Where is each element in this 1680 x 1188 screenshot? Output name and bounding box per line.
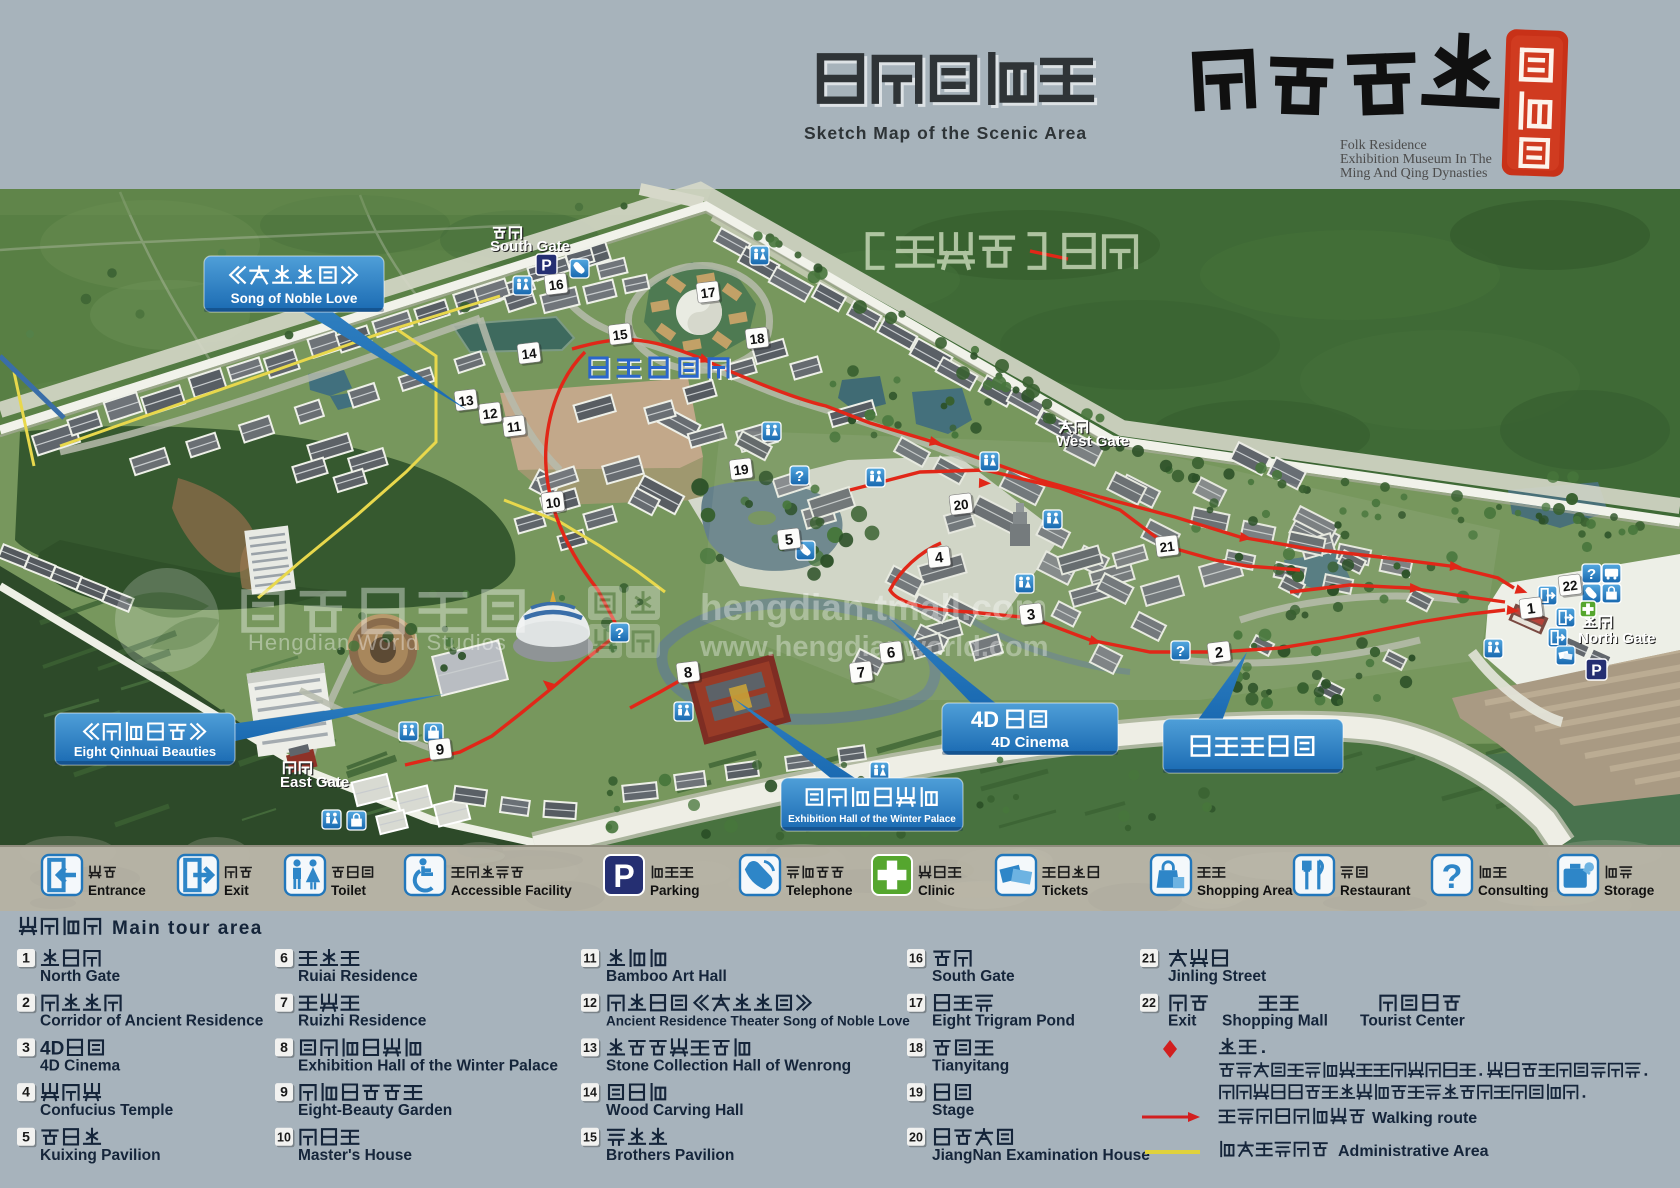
- svg-text:4D: 4D: [40, 1038, 64, 1059]
- svg-text:Eight Trigram Pond: Eight Trigram Pond: [932, 1013, 1075, 1030]
- svg-text:16: 16: [548, 277, 565, 294]
- svg-text:JiangNan Examination House: JiangNan Examination House: [932, 1147, 1150, 1164]
- svg-text:Accessible Facility: Accessible Facility: [451, 883, 572, 898]
- svg-text:13: 13: [583, 1041, 597, 1055]
- svg-text:Restaurant: Restaurant: [1340, 883, 1411, 898]
- svg-text:14: 14: [521, 346, 538, 363]
- svg-text:19: 19: [909, 1086, 923, 1100]
- svg-text:East Gate: East Gate: [280, 774, 349, 791]
- svg-text:Corridor of Ancient Residence: Corridor of Ancient Residence: [40, 1013, 264, 1030]
- svg-text:P: P: [1591, 662, 1602, 679]
- svg-text:Confucius Temple: Confucius Temple: [40, 1102, 174, 1119]
- svg-text:Parking: Parking: [650, 883, 700, 898]
- svg-text:Consulting: Consulting: [1478, 883, 1549, 898]
- svg-text:P: P: [541, 257, 552, 274]
- svg-text:Walking route: Walking route: [1372, 1110, 1477, 1127]
- svg-text:?: ?: [795, 468, 804, 485]
- svg-text:Stone Collection Hall of Wenro: Stone Collection Hall of Wenrong: [606, 1057, 851, 1074]
- svg-text:11: 11: [506, 419, 522, 436]
- svg-text:4D Cinema: 4D Cinema: [40, 1057, 120, 1074]
- svg-text:4D: 4D: [971, 707, 999, 732]
- svg-text:5: 5: [22, 1128, 30, 1144]
- svg-text:20: 20: [909, 1130, 923, 1144]
- svg-text:Toilet: Toilet: [331, 883, 367, 898]
- svg-text:2: 2: [22, 994, 30, 1010]
- svg-text:19: 19: [733, 462, 750, 479]
- svg-text:Exit: Exit: [1168, 1013, 1196, 1030]
- svg-text:1: 1: [22, 950, 30, 966]
- svg-text:Song of Noble Love: Song of Noble Love: [231, 291, 358, 306]
- svg-text:Ruiai Residence: Ruiai Residence: [298, 968, 418, 985]
- svg-text:Exhibition Hall of the Winter: Exhibition Hall of the Winter Palace: [788, 814, 956, 825]
- svg-text:9: 9: [280, 1084, 288, 1100]
- svg-text:South Gate: South Gate: [490, 238, 570, 255]
- svg-text:22: 22: [1562, 578, 1579, 595]
- svg-text:4D Cinema: 4D Cinema: [991, 734, 1069, 751]
- svg-text:22: 22: [1142, 996, 1156, 1010]
- svg-text:20: 20: [953, 497, 970, 514]
- svg-text:Ruizhi Residence: Ruizhi Residence: [298, 1013, 427, 1030]
- svg-text:Administrative Area: Administrative Area: [1338, 1143, 1489, 1160]
- svg-text:Bamboo Art Hall: Bamboo Art Hall: [606, 968, 727, 985]
- svg-text:13: 13: [458, 393, 475, 410]
- svg-text:12: 12: [583, 996, 597, 1010]
- svg-text:21: 21: [1159, 539, 1176, 556]
- svg-text:Main tour area: Main tour area: [112, 918, 263, 939]
- svg-text:16: 16: [909, 952, 923, 966]
- svg-text:?: ?: [1176, 643, 1185, 660]
- svg-text:Wood Carving Hall: Wood Carving Hall: [606, 1102, 744, 1119]
- svg-text:21: 21: [1142, 952, 1156, 966]
- svg-text:hengdian.tmall.com: hengdian.tmall.com: [700, 587, 1047, 628]
- svg-text:Sketch Map of the Scenic Area: Sketch Map of the Scenic Area: [804, 123, 1087, 143]
- svg-text:Shopping Area: Shopping Area: [1197, 883, 1293, 898]
- svg-text:Entrance: Entrance: [88, 883, 146, 898]
- svg-text:P: P: [613, 858, 634, 894]
- svg-text:Telephone: Telephone: [786, 883, 853, 898]
- svg-text:Exhibition Museum In The: Exhibition Museum In The: [1340, 152, 1492, 167]
- svg-text:Jinling Street: Jinling Street: [1168, 968, 1266, 985]
- svg-text:?: ?: [1442, 858, 1463, 896]
- svg-text:www.hengdianworld.com: www.hengdianworld.com: [699, 631, 1049, 663]
- svg-text:15: 15: [583, 1130, 597, 1144]
- svg-text:West Gate: West Gate: [1056, 433, 1129, 450]
- svg-text:Eight Qinhuai Beauties: Eight Qinhuai Beauties: [74, 744, 216, 759]
- svg-text:Storage: Storage: [1604, 883, 1655, 898]
- svg-text:14: 14: [583, 1086, 597, 1100]
- svg-text:Stage: Stage: [932, 1102, 975, 1119]
- svg-text:17: 17: [909, 996, 923, 1010]
- svg-text:Eight-Beauty Garden: Eight-Beauty Garden: [298, 1102, 452, 1119]
- svg-text:North Gate: North Gate: [1578, 630, 1656, 647]
- svg-text:?: ?: [615, 625, 624, 642]
- svg-text:Tickets: Tickets: [1042, 883, 1088, 898]
- svg-text:South Gate: South Gate: [932, 968, 1015, 985]
- svg-text:15: 15: [612, 327, 629, 344]
- svg-text:Ming And Qing Dynasties: Ming And Qing Dynasties: [1340, 166, 1487, 181]
- svg-text:Tianyitang: Tianyitang: [932, 1057, 1009, 1074]
- svg-text:8: 8: [280, 1039, 288, 1055]
- svg-text:North Gate: North Gate: [40, 968, 120, 985]
- svg-text:Exit: Exit: [224, 883, 249, 898]
- svg-text:7: 7: [280, 994, 288, 1010]
- svg-text:Master's House: Master's House: [298, 1147, 412, 1164]
- svg-text:Tourist Center: Tourist Center: [1360, 1013, 1465, 1030]
- svg-text:Clinic: Clinic: [918, 883, 955, 898]
- svg-text:6: 6: [280, 950, 288, 966]
- svg-text:?: ?: [1587, 566, 1596, 583]
- svg-text:10: 10: [545, 495, 562, 512]
- svg-text:3: 3: [22, 1039, 30, 1055]
- svg-text:17: 17: [700, 285, 717, 302]
- svg-text:Brothers Pavilion: Brothers Pavilion: [606, 1147, 734, 1164]
- svg-text:12: 12: [482, 406, 499, 423]
- svg-text:Hengdian World Studios: Hengdian World Studios: [248, 630, 507, 655]
- svg-text:Folk Residence: Folk Residence: [1340, 138, 1427, 153]
- svg-text:10: 10: [277, 1130, 291, 1144]
- svg-text:11: 11: [583, 952, 596, 966]
- svg-text:4: 4: [22, 1084, 30, 1100]
- svg-text:18: 18: [749, 331, 766, 348]
- svg-text:Kuixing Pavilion: Kuixing Pavilion: [40, 1147, 161, 1164]
- svg-text:Exhibition Hall of the Winter: Exhibition Hall of the Winter Palace: [298, 1057, 558, 1074]
- svg-text:Shopping Mall: Shopping Mall: [1222, 1013, 1328, 1030]
- svg-text:Ancient Residence Theater Song: Ancient Residence Theater Song of Noble …: [606, 1014, 910, 1029]
- svg-text:18: 18: [909, 1041, 923, 1055]
